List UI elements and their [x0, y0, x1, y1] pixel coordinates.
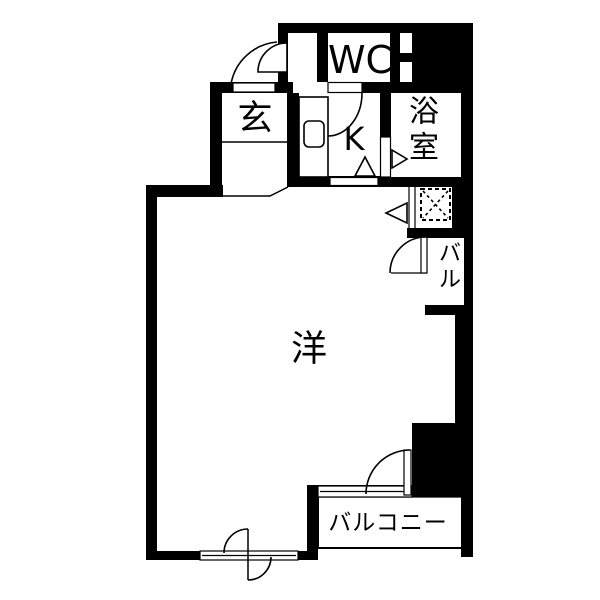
wc-door-opening — [328, 83, 362, 93]
entrance-left-wall — [210, 82, 222, 197]
entrance-step-line — [222, 187, 288, 196]
side-balcony-label-line1: バ — [439, 242, 461, 267]
floor-plan: WC 玄 K 浴 室 洋 バ ル バルコニー — [0, 0, 600, 600]
bath-label-line1: 浴 — [409, 95, 439, 130]
kitchen-sink-icon — [304, 121, 324, 147]
right-wall-side-balcony — [464, 238, 473, 307]
balcony-left-wall — [307, 485, 318, 560]
entrance-door-leaf-icon — [258, 43, 287, 72]
balcony-label: バルコニー — [328, 510, 448, 536]
right-wall-balcony — [461, 490, 473, 557]
side-balcony-door-leaf — [421, 237, 427, 273]
side-balcony-bottom-wall — [425, 305, 473, 315]
left-outer-wall — [146, 185, 157, 560]
kitchen-bath-wall — [380, 84, 391, 137]
right-wall-mid — [455, 315, 473, 423]
bath-door-opening — [381, 137, 391, 177]
pipe-space-upper — [400, 33, 412, 53]
right-wall-bath — [461, 93, 473, 187]
right-wall-nook — [452, 187, 473, 228]
wc-label: WC — [328, 38, 392, 82]
floor-plan-canvas: WC 玄 K 浴 室 洋 バ ル バルコニー — [0, 0, 600, 600]
closet — [288, 33, 317, 82]
right-corner-block — [412, 423, 473, 497]
bath-label-line2: 室 — [409, 131, 439, 166]
washer-pan-x-icon — [423, 191, 448, 218]
pivot-door-swing-upper-icon — [224, 529, 248, 553]
pipe-space-lower — [400, 62, 412, 82]
balcony-door-leaf — [404, 450, 411, 495]
entrance-label: 玄 — [237, 99, 272, 139]
western-room-label: 洋 — [291, 329, 327, 370]
side-balcony-label-line2: ル — [439, 268, 461, 293]
nook-bottom-wall — [407, 228, 473, 238]
nook-opening-triangle-icon — [386, 203, 407, 223]
kitchen-opening-triangle-icon — [355, 157, 375, 176]
corridor-notch — [293, 82, 328, 93]
entrance-kitchen-wall — [287, 93, 299, 187]
bottom-wall-left — [146, 551, 200, 560]
kitchen-door-opening — [330, 178, 378, 186]
living-top-wall — [146, 185, 223, 197]
entrance-door-opening — [233, 83, 275, 92]
kitchen-label: K — [344, 120, 366, 158]
